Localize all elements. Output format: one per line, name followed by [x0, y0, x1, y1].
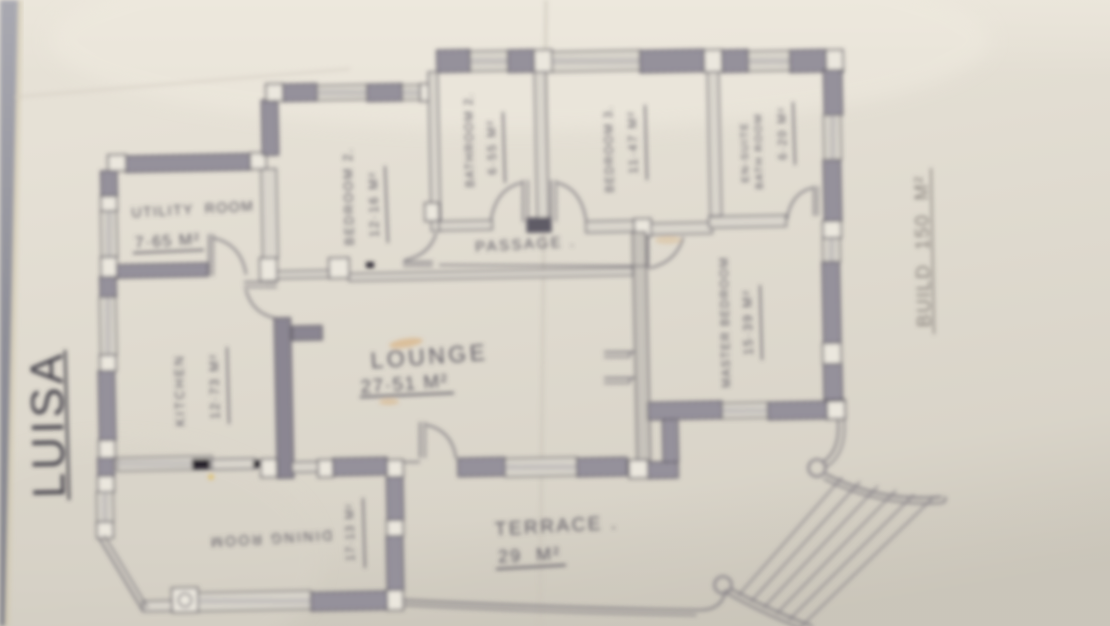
svg-text:17·13 M²: 17·13 M² — [344, 503, 357, 561]
svg-text:12·16 M²: 12·16 M² — [366, 171, 381, 237]
svg-text:6·55 M²: 6·55 M² — [484, 119, 499, 175]
svg-text:BEDROOM 2.: BEDROOM 2. — [341, 147, 357, 246]
svg-text:BATHROOM 2.: BATHROOM 2. — [463, 92, 477, 187]
svg-text:12·73 M²: 12·73 M² — [207, 353, 222, 419]
svg-text:BEDROOM 3.: BEDROOM 3. — [603, 105, 617, 192]
svg-text:11·47 M²: 11·47 M² — [625, 110, 640, 173]
svg-text:EN-SUITE: EN-SUITE — [738, 121, 751, 182]
svg-text:BATH ROOM: BATH ROOM — [752, 113, 766, 190]
svg-text:6·20 M²: 6·20 M² — [776, 106, 789, 160]
svg-text:15·39 M²: 15·39 M² — [740, 289, 755, 355]
svg-text:29 M²: 29 M² — [498, 543, 562, 566]
svg-text:KITCHEN: KITCHEN — [172, 354, 188, 427]
